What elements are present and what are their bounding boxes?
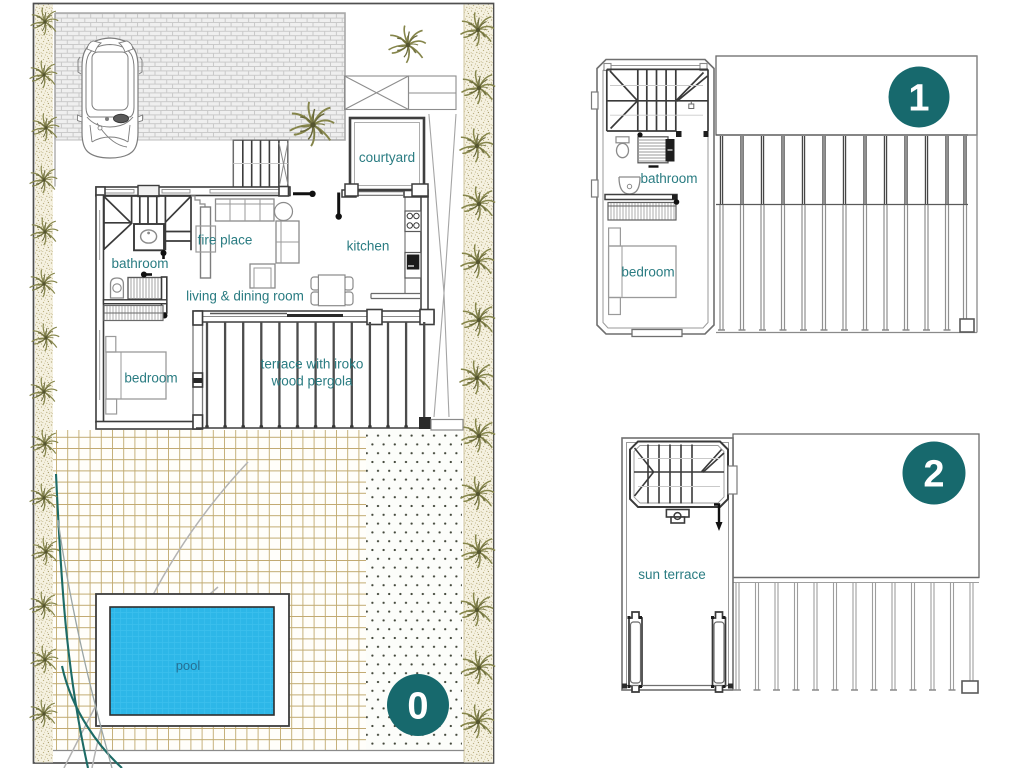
svg-text:bedroom: bedroom bbox=[124, 371, 177, 386]
svg-text:bathroom: bathroom bbox=[640, 171, 697, 186]
svg-text:fire place: fire place bbox=[198, 233, 253, 248]
svg-text:sun terrace: sun terrace bbox=[638, 567, 706, 582]
svg-text:0: 0 bbox=[407, 686, 428, 728]
svg-text:bedroom: bedroom bbox=[621, 265, 674, 280]
svg-text:wood pergola: wood pergola bbox=[270, 374, 353, 389]
svg-text:pool: pool bbox=[176, 658, 201, 673]
svg-text:2: 2 bbox=[923, 454, 944, 496]
svg-text:living & dining room: living & dining room bbox=[186, 289, 304, 304]
svg-text:bathroom: bathroom bbox=[111, 256, 168, 271]
svg-text:terrace with iroko: terrace with iroko bbox=[261, 357, 364, 372]
svg-text:1: 1 bbox=[908, 78, 929, 120]
svg-text:courtyard: courtyard bbox=[359, 150, 415, 165]
svg-text:kitchen: kitchen bbox=[347, 239, 390, 254]
